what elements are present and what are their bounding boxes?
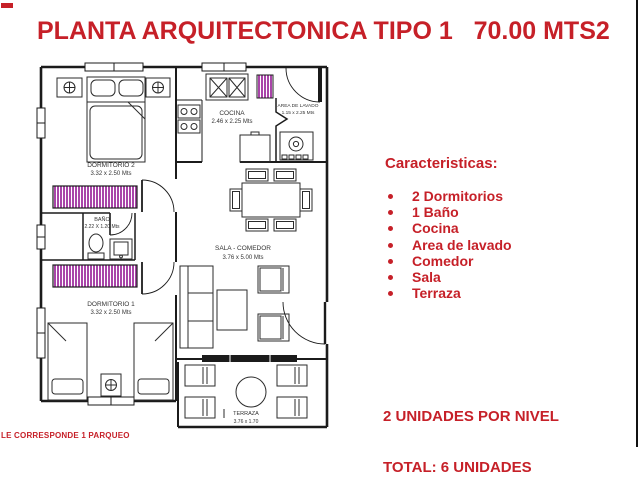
room-dims-dormitorio1: 3.32 x 2.50 Mts xyxy=(90,310,131,316)
door-arc-icon xyxy=(286,68,322,102)
room-label-sala: SALA - COMEDOR xyxy=(215,245,271,252)
dining-chair-icon xyxy=(274,219,296,231)
bano-fixtures xyxy=(88,234,132,259)
lavado-furniture xyxy=(280,132,313,160)
door-arc-icon xyxy=(142,262,174,294)
room-label-bano: BAÑO xyxy=(94,216,110,223)
terrace-chair-icon xyxy=(277,397,307,418)
feature-label: Sala xyxy=(412,269,441,285)
dining-chair-icon xyxy=(274,169,296,181)
window-icon xyxy=(85,63,143,71)
units-line1: 2 UNIDADES POR NIVEL xyxy=(383,408,559,425)
dining-chair-icon xyxy=(230,189,242,211)
sofa-icon xyxy=(180,266,213,348)
dining-chair-icon xyxy=(246,219,268,231)
nightstand-lamp-icon xyxy=(146,78,170,97)
floor-plan: DORMITORIO 2 3.32 x 2.50 Mts BAÑO 2.22 X… xyxy=(30,62,340,430)
sink-icon xyxy=(110,239,132,259)
room-label-cocina: COCINA xyxy=(219,110,245,117)
footer-note: LE CORRESPONDE 1 PARQUEO xyxy=(1,431,130,440)
feature-item: Area de lavado xyxy=(385,237,615,253)
feature-label: Comedor xyxy=(412,253,473,269)
bullet-icon xyxy=(388,226,393,231)
window-icon xyxy=(88,397,134,405)
nightstand-lamp-icon xyxy=(57,78,82,97)
double-bed-icon xyxy=(87,77,145,162)
feature-label: 1 Baño xyxy=(412,204,459,220)
room-dims-bano: 2.22 X 1.20 Mts xyxy=(84,224,120,230)
room-label-dormitorio1: DORMITORIO 1 xyxy=(87,301,135,308)
feature-list: 2 Dormitorios 1 Baño Cocina Area de lava… xyxy=(385,188,615,301)
bullet-icon xyxy=(388,194,393,199)
washer-icon xyxy=(280,132,313,160)
kitchen-sink-icon xyxy=(206,74,248,100)
bullet-icon xyxy=(388,210,393,215)
page: { "title": "PLANTA ARQUITECTONICA TIPO 1… xyxy=(0,0,642,447)
terrace-chair-icon xyxy=(185,365,215,386)
pantry-icon xyxy=(257,75,273,98)
comedor-furniture xyxy=(230,169,312,231)
cocina-furniture xyxy=(178,74,270,162)
terrace-chair-icon xyxy=(185,397,215,418)
window-icon xyxy=(202,63,246,71)
room-dims-dormitorio2: 3.32 x 2.50 Mts xyxy=(90,171,131,177)
dining-chair-icon xyxy=(246,169,268,181)
window-icon xyxy=(37,225,45,249)
room-dims-cocina: 2.46 x 2.25 Mts xyxy=(211,119,252,125)
feature-item: Comedor xyxy=(385,253,615,269)
dining-table-icon xyxy=(242,183,300,217)
feature-label: Cocina xyxy=(412,220,459,236)
terraza-furniture xyxy=(185,355,307,418)
dining-chair-icon xyxy=(300,189,312,211)
sliding-window-band xyxy=(202,355,297,362)
characteristics-heading: Caracteristicas: xyxy=(385,155,498,172)
feature-label: Area de lavado xyxy=(412,237,512,253)
feature-item: 2 Dormitorios xyxy=(385,188,615,204)
corner-red-mark xyxy=(1,3,13,8)
room-dims-terraza: 3.76 x 1.70 xyxy=(234,419,259,425)
bullet-icon xyxy=(388,291,393,296)
terrace-chair-icon xyxy=(277,365,307,386)
closet-icon xyxy=(53,265,137,287)
bullet-icon xyxy=(388,243,393,248)
door-arc-icon xyxy=(142,180,174,212)
feature-item: Cocina xyxy=(385,220,615,236)
armchair-icon xyxy=(258,266,289,293)
sala-furniture xyxy=(180,266,289,348)
room-dims-sala: 3.76 x 5.00 Mts xyxy=(222,255,263,261)
feature-label: Terraza xyxy=(412,285,461,301)
fridge-icon xyxy=(240,132,270,162)
single-bed-icon xyxy=(48,323,87,400)
page-right-border xyxy=(636,0,638,447)
armchair-icon xyxy=(258,314,289,341)
single-bed-icon xyxy=(134,323,173,400)
dormitorio1-furniture xyxy=(48,323,173,400)
feature-item: Terraza xyxy=(385,285,615,301)
toilet-icon xyxy=(88,234,104,259)
dormitorio2-furniture xyxy=(57,77,170,162)
window-icon xyxy=(37,308,45,358)
page-title: PLANTA ARQUITECTONICA TIPO 1 70.00 MTS2 xyxy=(37,17,610,46)
closet-icon xyxy=(53,186,137,208)
bullet-icon xyxy=(388,259,393,264)
terrace-table-icon xyxy=(236,377,266,407)
units-block: 2 UNIDADES POR NIVEL TOTAL: 6 UNIDADES xyxy=(383,374,559,493)
floor-plan-svg: DORMITORIO 2 3.32 x 2.50 Mts BAÑO 2.22 X… xyxy=(30,62,340,430)
units-line2: TOTAL: 6 UNIDADES xyxy=(383,459,559,476)
coffee-table-icon xyxy=(217,290,247,330)
room-label-lavado: AREA DE LAVADO xyxy=(278,103,319,109)
feature-label: 2 Dormitorios xyxy=(412,188,503,204)
walls xyxy=(41,67,327,427)
window-icon xyxy=(37,108,45,138)
bullet-icon xyxy=(388,275,393,280)
stove-icon xyxy=(178,105,200,133)
feature-item: Sala xyxy=(385,269,615,285)
room-label-dormitorio2: DORMITORIO 2 xyxy=(87,162,135,169)
feature-item: 1 Baño xyxy=(385,204,615,220)
room-label-terraza: TERRAZA xyxy=(233,411,259,417)
room-dims-lavado: 1.15 x 2.25 Mts xyxy=(282,110,315,116)
nightstand-lamp-icon xyxy=(101,374,121,396)
counter-edge xyxy=(176,100,202,162)
